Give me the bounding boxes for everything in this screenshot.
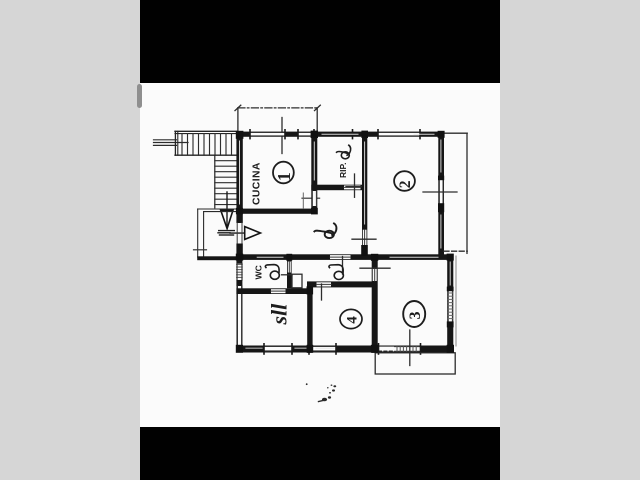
svg-text:2: 2 <box>397 180 414 188</box>
svg-text:4: 4 <box>344 316 360 324</box>
svg-text:WC: WC <box>254 265 264 279</box>
svg-text:CUCINA: CUCINA <box>252 162 263 205</box>
svg-text:1: 1 <box>274 172 294 181</box>
svg-text:RIP.: RIP. <box>338 163 348 178</box>
svg-text:sll: sll <box>267 303 292 326</box>
svg-text:3: 3 <box>407 312 424 320</box>
